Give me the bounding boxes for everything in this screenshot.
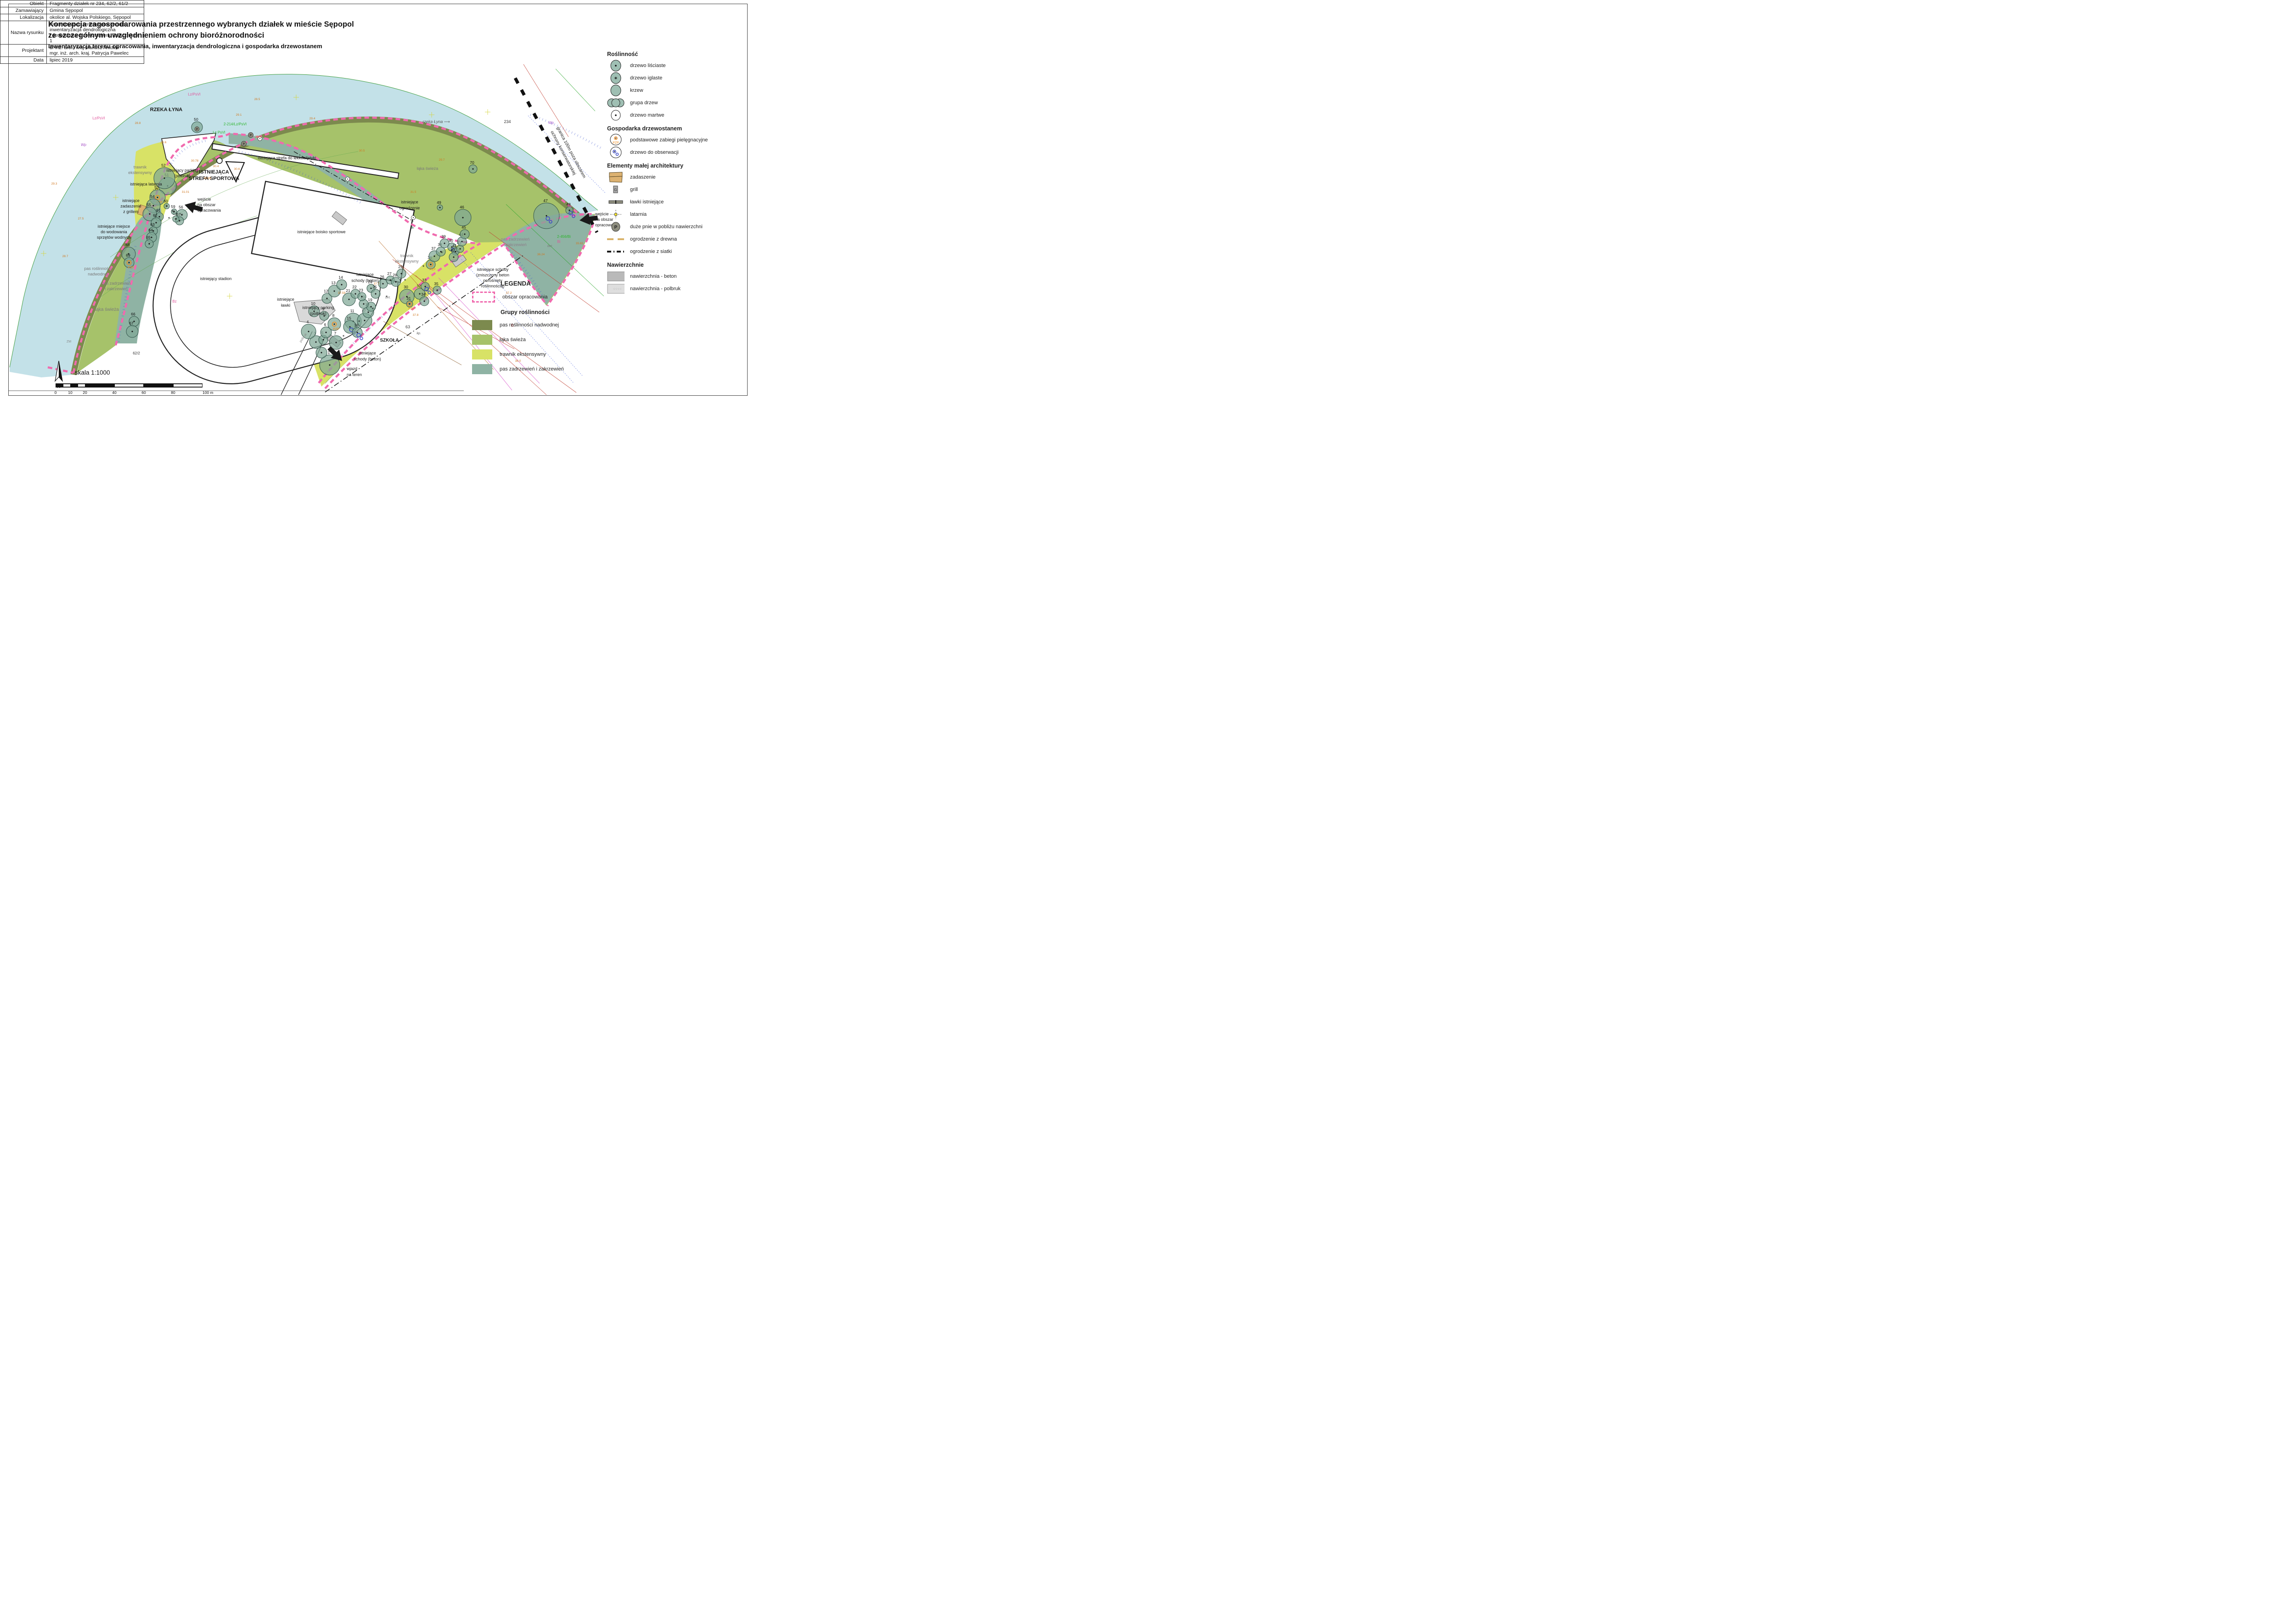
map-label: na teren <box>347 372 362 377</box>
map-label: pas zadrzewień <box>501 237 530 242</box>
tree-dot <box>546 215 547 217</box>
elevation-label: 29.9 <box>255 135 261 139</box>
tree-dot <box>336 342 337 343</box>
tree-number: 59 <box>171 204 175 209</box>
map-label: schody (beton) <box>354 357 381 361</box>
tree-number: 4 <box>307 320 309 324</box>
pzp-label: PZP <box>408 308 415 311</box>
vegetation-group-swatch <box>472 320 492 330</box>
tree-dot <box>134 321 135 322</box>
map-label: bet. <box>385 296 391 299</box>
tree-dot <box>455 251 456 253</box>
vegetation-groups-list: pas roślinności nadwodnejłąka świeżatraw… <box>472 320 603 374</box>
svg-text:P: P <box>614 225 618 230</box>
observation-tree-icon <box>607 146 625 159</box>
elevation-label: 29.4 <box>310 117 315 120</box>
scale-tick: 0 <box>55 390 57 395</box>
tree-number: 11 <box>350 309 355 313</box>
tree-dot <box>569 210 570 211</box>
tree-number: 55 <box>146 202 151 207</box>
pzp-label: PZP <box>429 268 436 271</box>
tree-number: 27 <box>387 271 392 276</box>
tree-dot <box>464 234 466 235</box>
tree-dot <box>361 296 363 298</box>
map-label: 62/2 <box>133 351 140 355</box>
elevation-label: 29.3 <box>51 182 57 185</box>
tree-number: 50 <box>194 117 198 122</box>
tree-coniferous-icon: ✶ <box>607 72 625 84</box>
map-label: wjazd <box>346 366 357 371</box>
tree-dot <box>323 339 324 341</box>
tree-dot <box>308 331 310 332</box>
tree-number: 35 <box>434 281 439 286</box>
throwing-circle <box>217 158 222 163</box>
tree-number: 7 <box>334 331 337 336</box>
legend-item-stump: Pduże pnie w pobliżu nawierzchni <box>607 220 745 233</box>
elevation-label: 31.5 <box>411 191 416 194</box>
shelter-icon <box>607 171 625 183</box>
legend-item-shelter: zadaszenie <box>607 171 745 183</box>
bench-icon <box>607 199 625 205</box>
legenda-title: LEGENDA <box>501 280 603 287</box>
map-label: bet. <box>547 245 553 248</box>
tree-number: 31 <box>406 296 411 301</box>
wooden-fence-icon <box>607 237 625 241</box>
tree-dot <box>334 324 335 325</box>
map-label: istniejący parking <box>166 168 198 173</box>
legend-item-shrub: krzew <box>607 84 745 96</box>
pzp-label: PZP <box>333 328 339 331</box>
svg-text:PZP: PZP <box>613 141 619 145</box>
tree-dot <box>368 312 369 313</box>
tree-dot <box>364 320 366 321</box>
map-label: istniejące schody <box>477 267 509 272</box>
legend-item-label: latarnia <box>630 212 647 217</box>
map-label: Bz <box>558 213 562 217</box>
map-label: łąka świeża <box>417 166 439 171</box>
elevation-label: 27.5 <box>78 217 84 220</box>
tree-number: 67 <box>129 321 134 326</box>
legend-item-label: grupa drzew <box>630 100 658 106</box>
svg-text:✶: ✶ <box>613 76 618 81</box>
elevation-label: 30.4 <box>213 165 219 168</box>
tree-dot <box>363 303 365 305</box>
map-label: ekstensywny <box>395 259 419 264</box>
study-area-label: obszar opracowania <box>502 294 547 300</box>
map-label: Bi <box>557 240 560 244</box>
tree-dot <box>395 281 397 283</box>
tree-dot <box>390 280 391 281</box>
vegetation-group-label: łąka świeża <box>500 337 526 343</box>
tree-dot <box>153 230 154 232</box>
stump-icon: P <box>607 222 625 232</box>
map-label: do wodowania <box>101 230 127 234</box>
vegetation-group-swatch <box>472 335 492 345</box>
scale-label: skala 1:1000 <box>75 369 110 376</box>
elevation-label: 37.59 <box>338 292 346 295</box>
tree-dot <box>157 197 158 198</box>
tree-dot <box>461 241 463 242</box>
tree-dot <box>453 257 455 258</box>
map-label: nadwodnej <box>88 272 108 276</box>
tree-number: 6 <box>324 322 326 327</box>
scale-bar-segment <box>63 384 70 387</box>
mesh-fence-icon <box>607 250 625 253</box>
elevation-label: 28.8 <box>135 122 141 125</box>
legend-item-tree-deciduous: drzewo liściaste <box>607 59 745 72</box>
tree-dot <box>375 293 377 295</box>
map-label: 63 <box>405 325 410 329</box>
tree-dot <box>129 262 130 264</box>
svg-text:G: G <box>614 188 617 192</box>
map-label: Lz/PsVI <box>188 92 201 96</box>
concrete-icon <box>607 271 625 281</box>
scale-tick: 100 m <box>203 390 214 395</box>
legend-item-label: nawierzchnia - polbruk <box>630 286 681 292</box>
vegetation-group-row: trawnik ekstensywny <box>472 349 603 359</box>
stump-letter: P <box>196 129 198 131</box>
tree-number: 64 <box>148 228 153 232</box>
map-label: łąka świeża <box>95 307 119 312</box>
tree-dot <box>460 248 461 250</box>
plan-sheet: 1234567PZP891011121314151617181920212223… <box>0 0 756 403</box>
svg-text:⁖⁖⁖⁖: ⁖⁖⁖⁖ <box>613 287 622 291</box>
elevation-label: 29.6 <box>161 141 167 144</box>
tree-number: 68 <box>125 242 130 247</box>
tree-dot <box>439 207 441 208</box>
elevation-label: 30.5 <box>359 149 365 152</box>
map-label: istniejące <box>401 200 418 204</box>
lantern-icon <box>607 209 625 219</box>
tree-number: 32 <box>416 284 421 288</box>
map-label: istniejący parking <box>302 305 334 310</box>
legend-item-label: drzewo iglaste <box>630 75 662 81</box>
tree-number: 21 <box>346 288 350 293</box>
map-label: istniejące miejsce <box>98 224 130 229</box>
title-block: Koncepcja zagospodarowania przestrzenneg… <box>48 19 354 50</box>
map-label: istniejące <box>356 272 374 277</box>
map-label: 234 <box>504 119 511 124</box>
elevation-label: 29.1 <box>236 113 242 117</box>
survey-line <box>556 69 595 111</box>
conifer-symbol: ✶ <box>371 307 374 310</box>
dead-tree-icon <box>607 109 625 121</box>
map-label: istniejące boisko sportowe <box>297 230 345 234</box>
conifer-symbol: ✶ <box>422 264 425 268</box>
page-title-line1: Koncepcja zagospodarowania przestrzenneg… <box>48 19 354 30</box>
map-label: (zniszczony beton <box>476 273 509 277</box>
tree-number: 39 <box>441 234 446 239</box>
tree-number: 56 <box>179 205 183 209</box>
tree-number: 13 <box>331 281 336 285</box>
tree-dot <box>401 273 402 275</box>
tree-dot <box>437 290 438 291</box>
tree-number: 63 <box>150 222 155 227</box>
tree-conifer-mark: ✶ <box>165 204 169 208</box>
tree-dot <box>430 264 432 265</box>
legend-item-mesh-fence: ogrodzenie z siatki <box>607 245 745 258</box>
tree-dot <box>132 331 133 332</box>
tree-number: 34 <box>421 292 426 297</box>
legend-item-label: zadaszenie <box>630 174 656 180</box>
tree-deciduous-icon <box>607 60 625 72</box>
tree-number: 42 <box>450 248 455 253</box>
tree-dot <box>156 222 157 224</box>
elevation-label: 36.24 <box>537 253 545 256</box>
tree-number: 49 <box>437 200 441 205</box>
legend-item-tree-coniferous: ✶drzewo iglaste <box>607 72 745 84</box>
map-label: istniejące <box>359 351 376 355</box>
map-symbol-legend: Roślinnośćdrzewo liściaste✶drzewo iglast… <box>607 47 745 295</box>
legend-section-header: Elementy małej architektury <box>607 163 745 169</box>
tree-dot <box>329 365 331 366</box>
vegetation-group-row: pas roślinności nadwodnej <box>472 320 603 330</box>
tree-number: 15 <box>347 316 351 320</box>
map-label: wejście <box>197 197 211 202</box>
tree-dot <box>419 293 421 295</box>
tree-number: 48 <box>566 202 571 207</box>
pzp-icon: PZP <box>607 133 625 147</box>
scale-bar-segment <box>78 384 85 387</box>
map-label: 2-456/Bi <box>557 235 571 239</box>
map-label: ogrodzenie <box>400 206 420 210</box>
elevation-label: 31.01 <box>182 191 190 194</box>
legend-item-label: grill <box>630 187 638 192</box>
vegetation-group-label: pas zadrzewień i zakrzewień <box>500 366 564 372</box>
elevation-label: 28.5 <box>254 98 260 101</box>
tree-dot <box>315 342 317 343</box>
map-label: rzeka Łyna ⟶ <box>422 119 450 124</box>
tree-dot <box>149 243 150 245</box>
conifer-symbol: ✶ <box>168 216 170 220</box>
map-label: i zakrzewień <box>504 242 527 247</box>
tree-dot <box>424 301 425 302</box>
map-label: opracowania <box>197 208 221 213</box>
stump-letter: P <box>243 143 245 146</box>
map-label: istniejąca strefa do lekkoatletyki <box>258 156 316 160</box>
map-label: RZEKA ŁYNA <box>150 107 183 112</box>
map-label: 2-214/Lz/PsVI <box>224 122 247 126</box>
tree-dot <box>326 332 327 333</box>
vegetation-group-swatch <box>472 364 492 374</box>
tree-group-icon <box>607 97 625 109</box>
conifer-symbol: ✶ <box>342 334 345 338</box>
tree-number: 61 <box>156 208 161 213</box>
scale-tick: 10 <box>68 390 73 395</box>
study-area-swatch <box>472 292 495 303</box>
map-label: Bz <box>172 299 176 303</box>
legend-item-label: duże pnie w pobliżu nawierzchni <box>630 224 703 230</box>
paver-icon: ⁖⁖⁖⁖ <box>607 284 625 294</box>
tree-dot <box>357 332 358 333</box>
page-subtitle: Inwentaryzacja terenu opracowania, inwen… <box>48 43 354 50</box>
tree-number: 29 <box>398 264 403 269</box>
scale-bar-segment <box>115 384 143 387</box>
map-label: pas zadrzewień <box>102 281 131 286</box>
dead-tree-dot <box>413 217 414 218</box>
map-label: SZKOŁA <box>380 338 399 343</box>
legend-item-paver: ⁖⁖⁖⁖nawierzchnia - polbruk <box>607 282 745 295</box>
map-label: istniejące <box>122 198 140 203</box>
tree-dot <box>179 220 180 222</box>
legend-item-grill: Ggrill <box>607 183 745 196</box>
elevation-label: 29.7 <box>439 158 445 162</box>
tree-number: 12 <box>324 289 328 293</box>
map-label: sprzętów wodnych <box>97 235 131 240</box>
legend-item-tree-group: grupa drzew <box>607 96 745 109</box>
map-label: trawnik <box>400 253 414 258</box>
tree-dot <box>341 284 343 286</box>
legend-section-header: Gospodarka drzewostanem <box>607 125 745 132</box>
tree-dot <box>355 293 356 295</box>
tree-dot <box>334 291 335 292</box>
legend-item-lantern: latarnia <box>607 208 745 220</box>
conifer-symbol: ✶ <box>440 251 443 254</box>
legend-section-header: Nawierzchnie <box>607 262 745 268</box>
tree-dot <box>349 326 351 328</box>
map-label: i zakrzewień <box>105 286 128 291</box>
tree-number: 46 <box>460 205 464 209</box>
map-label: pas roślinności <box>84 266 112 271</box>
tree-dot <box>326 298 328 299</box>
legend-item-label: ławki istniejące <box>630 199 664 205</box>
tree-dot <box>434 256 435 257</box>
tree-number: 40 <box>449 238 453 243</box>
tree-dot <box>462 217 464 219</box>
tree-number: 62 <box>153 213 158 218</box>
tree-dot <box>473 169 474 170</box>
scale-tick: 20 <box>83 390 87 395</box>
tree-dot <box>151 237 152 238</box>
legend-item-concrete: nawierzchnia - beton <box>607 270 745 282</box>
map-label: istniejąca latarnia <box>130 182 162 186</box>
vegetation-group-label: trawnik ekstensywny <box>500 352 546 357</box>
map-label: ISTNIEJĄCA <box>199 169 229 175</box>
dead-tree-dot <box>347 179 348 180</box>
tree-number: 37 <box>431 246 436 251</box>
map-label: wejście <box>595 212 609 216</box>
tree-number: 23 <box>359 288 363 292</box>
stump-letter: P <box>250 135 252 137</box>
tree-dot <box>425 286 426 287</box>
legend-item-observation-tree: drzewo do obserwacji <box>607 146 745 158</box>
map-label: (polbruk) <box>310 311 326 316</box>
tree-dot <box>383 283 384 285</box>
tree-number: 60 <box>163 199 168 203</box>
map-label: z grillem <box>123 209 139 214</box>
elevation-label: 30.6 <box>234 168 240 171</box>
elevation-label: 28.7 <box>62 255 68 258</box>
tree-dot <box>149 213 151 215</box>
conifer-symbol: ✶ <box>404 278 406 282</box>
tree-number: 19 <box>368 298 372 302</box>
legenda-box: LEGENDA obszar opracowania Grupy roślinn… <box>472 280 603 374</box>
legend-item-label: ogrodzenie z drewna <box>630 236 677 242</box>
grill-icon: G <box>607 185 625 194</box>
tree-dot <box>321 352 322 354</box>
tree-dot <box>371 288 372 289</box>
tree-number: 8 <box>332 313 335 318</box>
tree-number: 70 <box>470 160 474 165</box>
tree-number: 65 <box>146 235 151 240</box>
vegetation-groups-header: Grupy roślinności <box>501 309 603 315</box>
legend-item-label: ogrodzenie z siatki <box>630 249 672 254</box>
legend-item-label: drzewo do obserwacji <box>630 150 679 155</box>
map-label: istniejący stadion <box>200 276 232 281</box>
map-label: Lz/PsVI <box>92 116 105 120</box>
map-label: STREFA SPORTOWA <box>189 176 239 181</box>
tree-conifer-mark: ✶ <box>174 217 178 221</box>
page-title-line2: ze szczególnym uwzględnieniem ochrony bi… <box>48 30 354 41</box>
tree-number: 33 <box>422 278 427 282</box>
vegetation-group-swatch <box>472 349 492 359</box>
tree-number: 22 <box>352 285 357 289</box>
map-label: Wp <box>81 143 87 147</box>
map-label: trawnik <box>134 165 147 169</box>
conifer-symbol: ✶ <box>171 209 174 213</box>
legend-item-label: podstawowe zabiegi pielęgnacyjne <box>630 137 708 143</box>
scale-tick: 60 <box>141 390 146 395</box>
tree-number: 69 <box>126 253 130 258</box>
legenda-study-area-row: obszar opracowania <box>472 292 603 303</box>
elevation-label: 35.65 <box>576 242 584 245</box>
vegetation-group-row: łąka świeża <box>472 335 603 345</box>
tree-number: 52 <box>161 163 166 168</box>
map-label: Wp <box>548 121 554 125</box>
elevation-label: 37.8 <box>413 314 419 317</box>
map-label: istniejące <box>277 297 294 302</box>
tree-number: 30 <box>404 285 408 289</box>
tree-dot <box>159 216 160 218</box>
tree-dot <box>164 178 165 179</box>
conifer-symbol: ✶ <box>358 320 360 323</box>
map-label: Lz PsVI <box>213 130 225 135</box>
legend-item-label: krzew <box>630 88 643 93</box>
legend-section-header: Roślinność <box>607 51 745 57</box>
tree-dot <box>349 299 350 300</box>
legend-item-pzp: PZPpodstawowe zabiegi pielęgnacyjne <box>607 134 745 146</box>
map-label: (polbruk) <box>174 174 191 178</box>
tree-number: 47 <box>543 198 548 203</box>
scale-tick: 40 <box>112 390 117 395</box>
scale-bar-segment <box>174 384 202 387</box>
legend-item-bench: ławki istniejące <box>607 196 745 208</box>
shrub-icon <box>607 84 625 96</box>
scale-tick: 80 <box>171 390 175 395</box>
map-label: zadaszenie <box>120 204 141 208</box>
legend-item-wooden-fence: ogrodzenie z drewna <box>607 233 745 245</box>
tree-number: 14 <box>338 275 343 280</box>
map-label: kp. <box>416 332 421 335</box>
tree-dot <box>444 243 445 244</box>
vegetation-group-row: pas zadrzewień i zakrzewień <box>472 364 603 374</box>
map-label: ekstensywny <box>128 170 152 175</box>
elevation-label: 30.85 <box>204 177 212 180</box>
pzp-label: PZP <box>128 266 134 270</box>
legend-item-dead-tree: drzewo martwe <box>607 109 745 121</box>
tree-number: 41 <box>452 243 457 248</box>
vegetation-group-label: pas roślinności nadwodnej <box>500 322 559 328</box>
legend-item-label: drzewo martwe <box>630 112 664 118</box>
map-label: ławki <box>281 303 290 308</box>
legend-item-label: nawierzchnia - beton <box>630 274 677 279</box>
map-label: ZM <box>67 340 71 343</box>
tree-dot <box>409 303 411 305</box>
tree-number: 66 <box>131 312 135 316</box>
survey-line <box>383 321 461 365</box>
elevation-label: 30.78 <box>191 159 199 163</box>
tree-number: 26 <box>380 275 384 279</box>
